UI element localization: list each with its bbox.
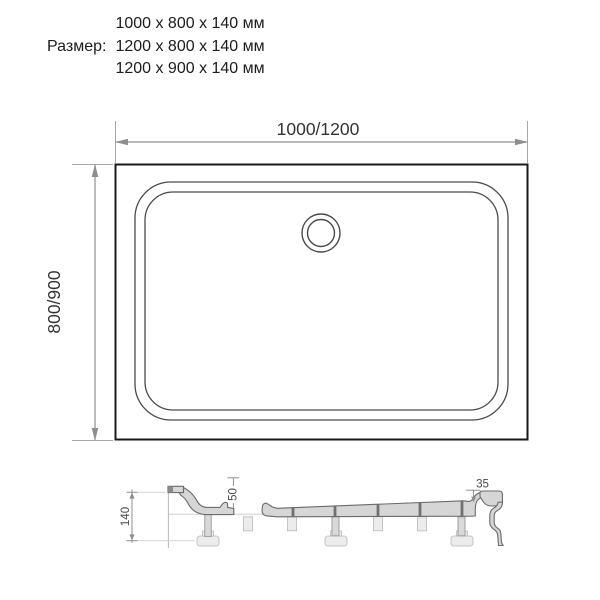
section-height-label: 140 <box>120 507 132 526</box>
foot-base <box>451 536 473 546</box>
cross-section: 140 50 35 <box>120 478 503 548</box>
arrowhead-top <box>92 164 99 177</box>
tray-outer-rect <box>116 165 528 440</box>
leg <box>332 517 339 536</box>
foot-base <box>197 536 219 546</box>
arrowhead-right <box>515 139 528 146</box>
left-rim-band <box>179 488 234 515</box>
inner-depth-label: 50 <box>228 488 240 501</box>
arrowhead-top <box>130 492 135 498</box>
leg <box>205 515 211 537</box>
inner-depth-dimension: 50 <box>228 478 240 508</box>
arrowhead-bottom <box>130 534 135 540</box>
width-dimension-label: 1000/1200 <box>277 119 360 139</box>
height-dimension-label: 800/900 <box>44 270 64 334</box>
leg <box>244 517 253 531</box>
plan-view <box>116 165 528 440</box>
foot-base <box>325 536 347 546</box>
rim-height-label: 35 <box>476 479 489 491</box>
arrowhead-left <box>115 139 128 146</box>
right-rim-wall <box>490 502 503 546</box>
arrowhead-bottom <box>92 428 99 441</box>
shower-tray-drawing: 1000/1200 800/900 <box>0 0 600 600</box>
height-dimension: 800/900 <box>44 164 113 441</box>
tray-slab-profile <box>262 492 481 517</box>
leg <box>418 517 427 531</box>
leg <box>458 517 465 536</box>
width-dimension: 1000/1200 <box>115 119 528 163</box>
leg <box>374 517 383 531</box>
leg <box>288 517 297 531</box>
left-rim-cap-tip <box>168 486 173 492</box>
